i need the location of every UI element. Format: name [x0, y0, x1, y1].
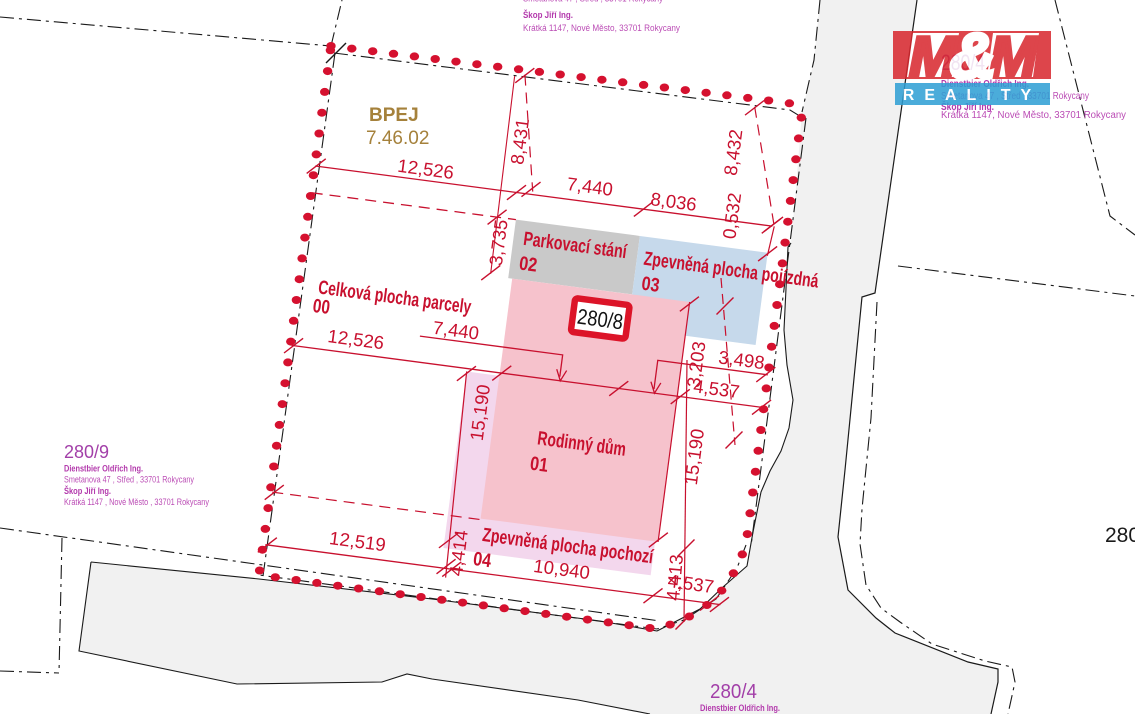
- svg-text:280/4: 280/4: [710, 681, 757, 703]
- svg-text:280: 280: [1105, 524, 1135, 547]
- svg-text:Smetanova 47 , Střed , 33701 R: Smetanova 47 , Střed , 33701 Rokycany: [523, 0, 663, 4]
- svg-text:Krátká 1147, Nové Město, 33701: Krátká 1147, Nové Město, 33701 Rokycany: [523, 23, 680, 33]
- svg-text:BPEJ: BPEJ: [369, 105, 419, 126]
- svg-text:01: 01: [529, 453, 550, 477]
- svg-text:03: 03: [640, 273, 661, 297]
- svg-text:Krátká 1147 , Nové Město , 337: Krátká 1147 , Nové Město , 33701 Rokycan…: [64, 497, 209, 507]
- svg-text:Krátká 1147, Nové Město, 33701: Krátká 1147, Nové Město, 33701 Rokycany: [941, 110, 1126, 121]
- svg-text:Smetanova 47 , Střed , 33701 R: Smetanova 47 , Střed , 33701 Rokycany: [64, 475, 194, 485]
- svg-text:Škop Jiří Ing.: Škop Jiří Ing.: [523, 9, 573, 20]
- svg-text:280/9: 280/9: [64, 442, 109, 462]
- svg-text:Dienstbier Oldřich Ing.: Dienstbier Oldřich Ing.: [700, 703, 780, 713]
- svg-text:Dienstbier Oldřich Ing.: Dienstbier Oldřich Ing.: [64, 464, 143, 474]
- svg-text:REALITY: REALITY: [903, 87, 1041, 104]
- svg-text:7.46.02: 7.46.02: [366, 128, 429, 149]
- svg-text:M: M: [989, 25, 1038, 89]
- svg-text:&: &: [950, 20, 996, 92]
- svg-text:02: 02: [518, 253, 539, 277]
- svg-text:04: 04: [472, 548, 493, 572]
- svg-text:Škop Jiří Ing.: Škop Jiří Ing.: [64, 485, 111, 496]
- svg-text:00: 00: [311, 295, 331, 319]
